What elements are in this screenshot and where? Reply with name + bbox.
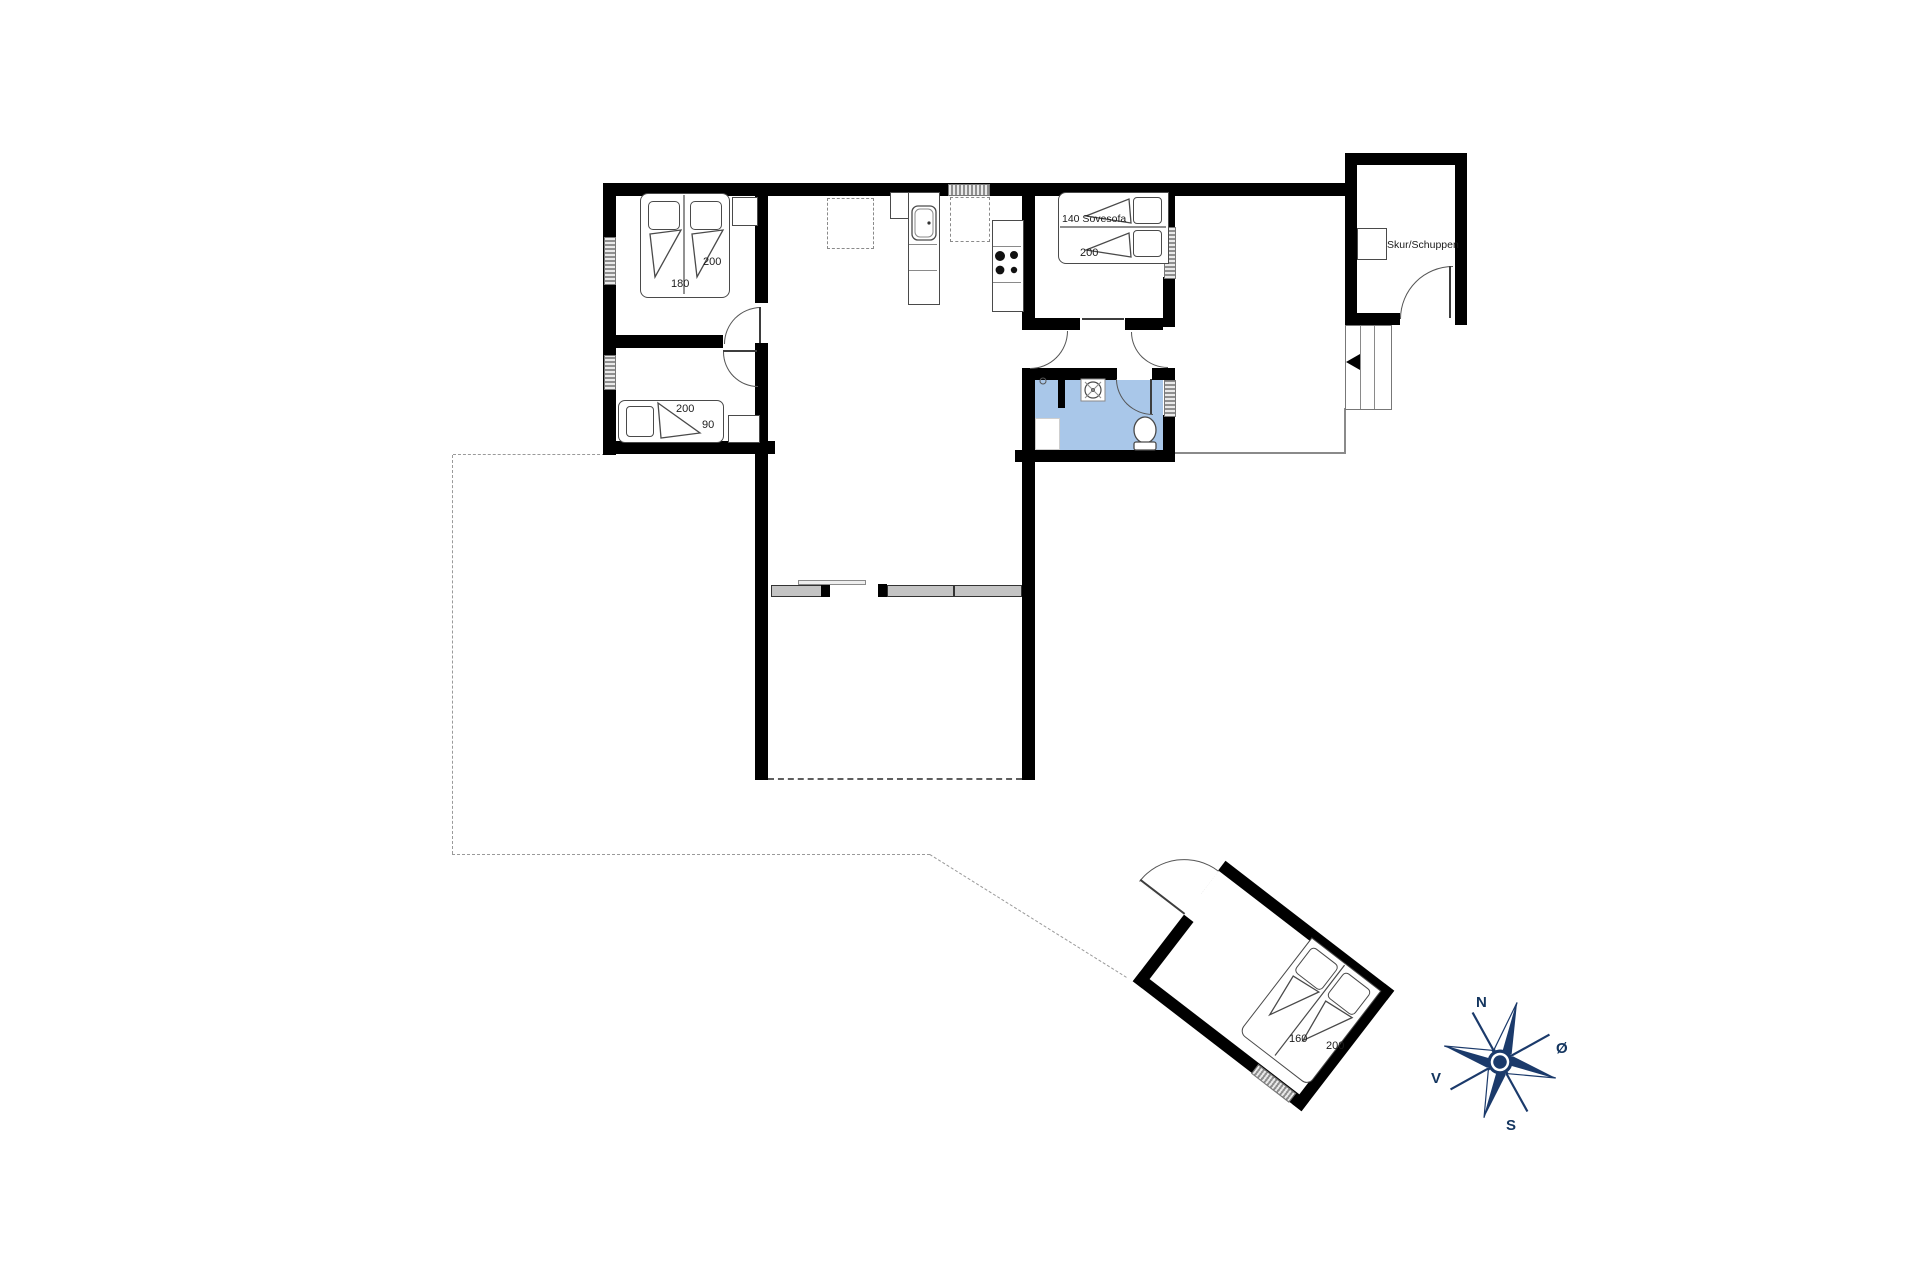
compass-label-north: N [1476, 994, 1487, 1011]
fixture-detail-layer [0, 0, 1920, 1279]
stove-burner-1 [995, 251, 1005, 261]
bedroom1-bed-length-label: 200 [703, 256, 721, 268]
stove-burner-2 [1010, 251, 1018, 259]
bedroom3-sofa-label: 140 Sovesofa [1062, 213, 1126, 225]
compass-label-west: V [1431, 1070, 1441, 1087]
bathroom-floor-drain-icon [1040, 378, 1046, 384]
bedroom1-duvet-left [650, 230, 681, 277]
toilet-tank [1134, 442, 1156, 450]
bedroom3-bed-length-label: 200 [1080, 247, 1098, 259]
annex-bed-length-label: 200 [1326, 1040, 1344, 1052]
kitchen-faucet-icon [927, 221, 930, 224]
compass-rose-icon [1420, 985, 1590, 1145]
annex-duvet-left [1266, 974, 1319, 1030]
stove-burner-4 [1011, 267, 1017, 273]
compass-label-south: S [1506, 1117, 1516, 1134]
annex-bed-width-label: 160 [1289, 1033, 1307, 1045]
floor-plan-page: { "colors": { "wall": "#000000", "bathro… [0, 0, 1920, 1279]
toilet-bowl [1134, 417, 1156, 443]
floor-plan-canvas: 200 180 200 90 140 Sovesofa 200 Skur/Sch… [0, 0, 1920, 1279]
bedroom2-bed-width-label: 90 [702, 419, 714, 431]
bedroom1-bed-width-label: 180 [671, 278, 689, 290]
bedroom1-duvet-right [692, 230, 723, 277]
stove-burner-3 [996, 266, 1005, 275]
bedroom2-bed-length-label: 200 [676, 403, 694, 415]
shed-name-label: Skur/Schuppen [1387, 239, 1459, 251]
compass-label-east: Ø [1556, 1040, 1568, 1057]
